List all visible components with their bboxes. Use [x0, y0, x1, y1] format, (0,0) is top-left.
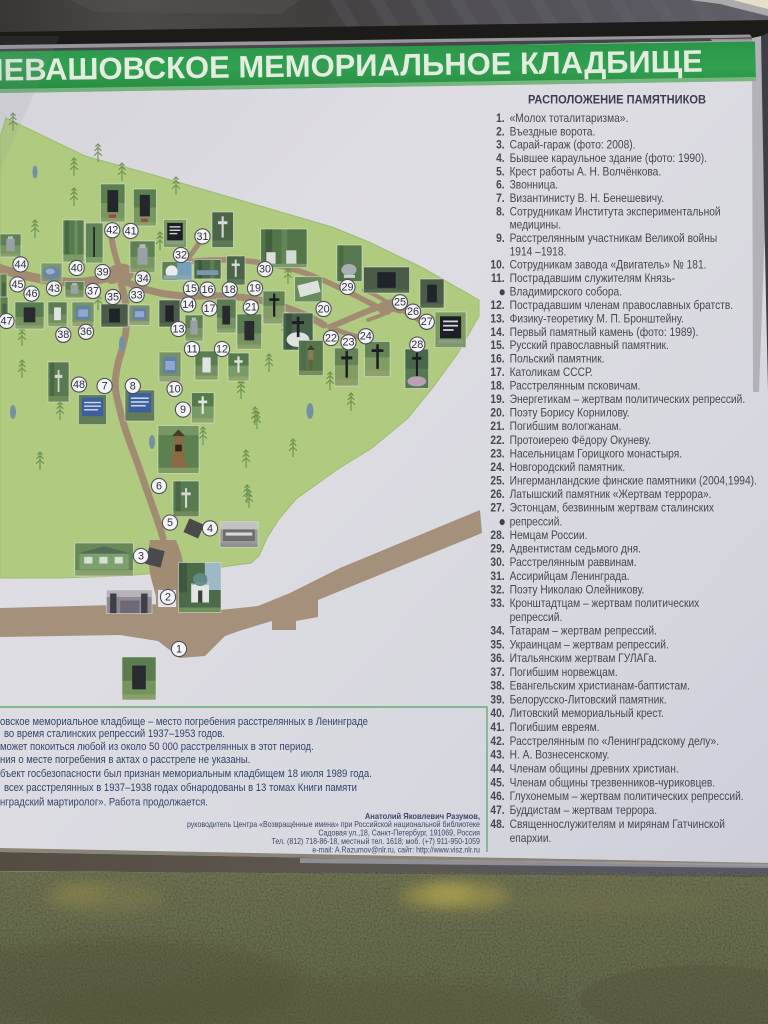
- svg-text:16.: 16.: [490, 353, 504, 366]
- svg-text:Кронштадтцам – жертвам полити: Кронштадтцам – жертвам политических: [510, 597, 700, 610]
- svg-text:7.: 7.: [496, 192, 505, 205]
- svg-text:«Молох тоталитаризма».: «Молох тоталитаризма».: [510, 112, 629, 125]
- svg-text:Поэту Николаю Олейникову.: Поэту Николаю Олейникову.: [510, 584, 645, 597]
- svg-text:11.: 11.: [491, 272, 505, 285]
- svg-text:26: 26: [407, 306, 419, 318]
- svg-text:Энергетикам – жертвам политиче: Энергетикам – жертвам политических репре…: [510, 393, 746, 406]
- svg-text:20: 20: [318, 303, 330, 315]
- svg-text:39.: 39.: [490, 694, 504, 707]
- svg-text:Украинцам – жертвам репрессий: Украинцам – жертвам репрессий.: [510, 639, 669, 652]
- svg-text:Евангельским христианам-баптис: Евангельским христианам-баптистам.: [510, 680, 690, 693]
- svg-text:35: 35: [107, 291, 119, 303]
- svg-text:Владимирского собора.: Владимирского собора.: [510, 286, 622, 299]
- svg-text:36.: 36.: [490, 652, 504, 665]
- svg-text:32.: 32.: [490, 584, 504, 597]
- svg-text:34.: 34.: [490, 625, 504, 638]
- svg-text:15.: 15.: [490, 339, 504, 352]
- svg-text:24: 24: [360, 331, 372, 343]
- svg-text:Сотрудникам Института эксперим: Сотрудникам Института экспериментальной: [510, 206, 721, 219]
- svg-text:5.: 5.: [496, 166, 505, 179]
- svg-text:9: 9: [180, 404, 186, 416]
- svg-text:44: 44: [14, 259, 26, 271]
- svg-text:46.: 46.: [490, 790, 504, 803]
- svg-text:Расстрелянным участникам Велик: Расстрелянным участникам Великой войны: [510, 232, 718, 245]
- svg-text:40.: 40.: [490, 707, 504, 720]
- svg-text:33.: 33.: [490, 597, 504, 610]
- svg-text:23: 23: [342, 337, 354, 349]
- svg-text:4: 4: [207, 523, 213, 535]
- svg-text:27: 27: [421, 316, 433, 328]
- svg-text:30: 30: [259, 264, 271, 276]
- svg-text:8: 8: [130, 380, 136, 392]
- svg-text:3: 3: [138, 550, 144, 562]
- svg-text:10.: 10.: [490, 259, 504, 272]
- svg-text:36: 36: [80, 326, 92, 338]
- svg-text:Итальянским жертвам ГУЛАГа.: Итальянским жертвам ГУЛАГа.: [510, 652, 657, 665]
- svg-text:Новгородский памятник.: Новгородский памятник.: [510, 461, 626, 474]
- svg-text:39: 39: [97, 266, 109, 278]
- svg-text:20.: 20.: [490, 407, 504, 420]
- svg-text:37: 37: [87, 285, 99, 297]
- svg-text:26.: 26.: [490, 488, 504, 501]
- svg-text:всех расстрелянных в 1937–1938: всех расстрелянных в 1937–1938 годах обн…: [4, 781, 357, 794]
- svg-text:22.: 22.: [490, 434, 504, 447]
- svg-text:Византинисту В. Н. Бенешевичу.: Византинисту В. Н. Бенешевичу.: [510, 192, 664, 205]
- svg-text:Сарай-гараж (фото: 2008).: Сарай-гараж (фото: 2008).: [510, 139, 636, 152]
- svg-text:47.: 47.: [490, 804, 504, 817]
- svg-text:Насельницам Горицкого монастыр: Насельницам Горицкого монастыря.: [510, 448, 682, 461]
- svg-text:овское мемориальное кладбище –: овское мемориальное кладбище – место пог…: [0, 715, 368, 728]
- svg-text:Крест работы А. Н. Волчёнкова.: Крест работы А. Н. Волчёнкова.: [510, 166, 662, 179]
- svg-text:1.: 1.: [496, 112, 505, 125]
- svg-text:Глухонемым – жертвам политиче: Глухонемым – жертвам политических репрес…: [510, 790, 744, 803]
- svg-text:42.: 42.: [490, 735, 504, 748]
- svg-text:Эстонцам, безвинным жертвам ст: Эстонцам, безвинным жертвам сталинских: [510, 502, 715, 515]
- svg-text:22: 22: [325, 332, 337, 344]
- svg-text:Н. А. Вознесенскому.: Н. А. Вознесенскому.: [510, 749, 610, 762]
- svg-text:Сотрудникам завода «Двигатель»: Сотрудникам завода «Двигатель» № 181.: [510, 259, 707, 272]
- svg-text:Членам общины трезвенников-чур: Членам общины трезвенников-чуриковцев.: [510, 777, 716, 790]
- svg-text:48: 48: [73, 379, 85, 391]
- svg-text:19.: 19.: [490, 393, 504, 406]
- svg-text:Погибшим норвежцам.: Погибшим норвежцам.: [510, 666, 618, 679]
- svg-text:42: 42: [106, 225, 118, 237]
- svg-text:29: 29: [341, 281, 353, 293]
- svg-text:23.: 23.: [490, 448, 504, 461]
- svg-text:1: 1: [176, 643, 182, 655]
- svg-text:40: 40: [71, 262, 83, 274]
- svg-text:13.: 13.: [490, 313, 504, 326]
- svg-text:32: 32: [175, 249, 187, 261]
- svg-text:бъект госбезопасности был приз: бъект госбезопасности был признан мемори…: [0, 767, 372, 780]
- svg-text:43: 43: [48, 283, 60, 295]
- svg-text:45: 45: [11, 279, 23, 291]
- svg-text:Адвентистам седьмого дня.: Адвентистам седьмого дня.: [510, 543, 641, 556]
- svg-text:47: 47: [0, 315, 12, 327]
- svg-text:12.: 12.: [490, 299, 504, 312]
- svg-text:РАСПОЛОЖЕНИЕ ПАМЯТНИКОВ: РАСПОЛОЖЕНИЕ ПАМЯТНИКОВ: [528, 94, 706, 107]
- svg-text:Латышский памятник «Жертвам те: Латышский памятник «Жертвам террора».: [510, 488, 712, 501]
- svg-text:Священнослужителям и мирянам Г: Священнослужителям и мирянам Гатчинской: [510, 818, 725, 831]
- svg-text:31: 31: [196, 231, 208, 243]
- svg-text:Буддистам – жертвам террора.: Буддистам – жертвам террора.: [510, 804, 657, 817]
- svg-text:25.: 25.: [490, 475, 504, 488]
- svg-text:17.: 17.: [490, 366, 504, 379]
- svg-text:27.: 27.: [490, 502, 504, 515]
- svg-text:25: 25: [394, 297, 406, 309]
- svg-text:21.: 21.: [490, 420, 504, 433]
- svg-text:Физику-теоретику М. П. Бронште: Физику-теоретику М. П. Бронштейну.: [510, 313, 684, 326]
- svg-text:Погибшим евреям.: Погибшим евреям.: [510, 721, 600, 734]
- svg-text:4.: 4.: [496, 152, 505, 165]
- svg-text:Расстрелянным псковичам.: Расстрелянным псковичам.: [510, 380, 641, 393]
- svg-text:15: 15: [185, 283, 197, 295]
- svg-text:31.: 31.: [490, 570, 504, 583]
- svg-text:45.: 45.: [490, 777, 504, 790]
- svg-text:Католикам СССР.: Католикам СССР.: [510, 366, 593, 379]
- svg-text:нградский мартиролог». Работа: нградский мартиролог». Работа продолжает…: [0, 796, 208, 809]
- svg-text:41: 41: [125, 225, 137, 237]
- svg-text:епархии.: епархии.: [510, 832, 552, 845]
- svg-text:5: 5: [167, 517, 173, 529]
- svg-text:Польский памятник.: Польский памятник.: [510, 353, 605, 366]
- svg-text:38: 38: [57, 329, 69, 341]
- svg-text:Въездные ворота.: Въездные ворота.: [510, 126, 596, 139]
- svg-text:Первый памятный камень (фото:: Первый памятный камень (фото: 1989).: [510, 326, 699, 339]
- svg-text:24.: 24.: [490, 461, 504, 474]
- svg-text:1914 –1918.: 1914 –1918.: [510, 246, 567, 259]
- svg-text:Бывшее караульное здание (фото: Бывшее караульное здание (фото: 1990).: [510, 152, 707, 165]
- svg-text:Немцам России.: Немцам России.: [510, 529, 588, 542]
- svg-text:Расстрелянным раввинам.: Расстрелянным раввинам.: [510, 556, 637, 569]
- svg-text:33: 33: [131, 289, 143, 301]
- svg-text:35.: 35.: [490, 639, 504, 652]
- svg-text:Ингерманландские финские памят: Ингерманландские финские памятники (2004…: [510, 475, 757, 488]
- svg-text:2: 2: [165, 591, 171, 603]
- svg-text:10: 10: [169, 383, 181, 395]
- svg-text:14: 14: [182, 299, 194, 311]
- svg-text:Ассирийцам Ленинграда.: Ассирийцам Ленинграда.: [510, 570, 630, 583]
- svg-text:19: 19: [249, 283, 261, 295]
- svg-text:может покоиться любой из около: может покоиться любой из около 50 000 ра…: [0, 740, 314, 753]
- svg-text:13: 13: [172, 323, 184, 335]
- svg-text:21: 21: [245, 302, 257, 314]
- svg-text:29.: 29.: [490, 543, 504, 556]
- svg-text:во время сталинских репрессий: во время сталинских репрессий 1937–1953 …: [4, 729, 225, 741]
- svg-text:6.: 6.: [496, 179, 505, 192]
- svg-text:28: 28: [411, 339, 423, 351]
- svg-text:Погибшим вологжанам.: Погибшим вологжанам.: [510, 420, 622, 433]
- svg-text:3.: 3.: [496, 139, 505, 152]
- svg-text:Пострадавшим служителям Князь-: Пострадавшим служителям Князь-: [510, 272, 676, 285]
- svg-text:2.: 2.: [496, 126, 505, 139]
- svg-text:48.: 48.: [490, 818, 504, 831]
- svg-text:44.: 44.: [490, 763, 504, 776]
- svg-text:14.: 14.: [490, 326, 504, 339]
- svg-text:Пострадавшим членам православн: Пострадавшим членам православных братств…: [510, 299, 734, 312]
- svg-text:38.: 38.: [490, 680, 504, 693]
- svg-text:12: 12: [216, 343, 228, 355]
- svg-text:6: 6: [156, 480, 162, 492]
- svg-text:11: 11: [186, 343, 197, 355]
- svg-text:28.: 28.: [490, 529, 504, 542]
- svg-text:Литовский мемориальный крест.: Литовский мемориальный крест.: [510, 707, 664, 720]
- svg-text:46: 46: [25, 288, 37, 300]
- svg-text:17: 17: [203, 303, 215, 315]
- svg-text:43.: 43.: [490, 749, 504, 762]
- svg-text:медицины.: медицины.: [510, 219, 561, 232]
- svg-text:Расстрелянным по «Ленинградско: Расстрелянным по «Ленинградскому делу».: [510, 735, 719, 748]
- svg-text:Поэту Борису Корнилову.: Поэту Борису Корнилову.: [510, 407, 630, 420]
- svg-text:34: 34: [137, 273, 149, 285]
- svg-text:Белорусско-Литовский памятник.: Белорусско-Литовский памятник.: [510, 694, 667, 707]
- svg-text:16: 16: [201, 284, 213, 296]
- svg-text:Звонница.: Звонница.: [510, 179, 558, 192]
- svg-text:ния о месте погребения в актах: ния о месте погребения в актах о расстре…: [0, 753, 250, 766]
- svg-text:41.: 41.: [490, 721, 504, 734]
- svg-text:e-mail: A.Razumov@nlr.ru, сайт: e-mail: A.Razumov@nlr.ru, сайт: http://w…: [312, 845, 480, 854]
- svg-text:9.: 9.: [496, 232, 505, 245]
- svg-text:репрессий.: репрессий.: [510, 611, 563, 624]
- svg-text:18.: 18.: [490, 380, 504, 393]
- svg-text:Татарам – жертвам репрессий.: Татарам – жертвам репрессий.: [510, 625, 657, 638]
- svg-text:Русский православный памятник.: Русский православный памятник.: [510, 339, 669, 352]
- svg-text:30.: 30.: [490, 556, 504, 569]
- svg-text:37.: 37.: [490, 666, 504, 679]
- svg-text:8.: 8.: [496, 206, 505, 219]
- svg-text:Членам общины древних христиан: Членам общины древних христиан.: [510, 763, 679, 776]
- svg-text:7: 7: [102, 380, 108, 392]
- svg-text:Протоиерею Фёдору Окуневу.: Протоиерею Фёдору Окуневу.: [510, 434, 652, 447]
- svg-text:репрессий.: репрессий.: [510, 516, 563, 529]
- svg-text:18: 18: [224, 284, 236, 296]
